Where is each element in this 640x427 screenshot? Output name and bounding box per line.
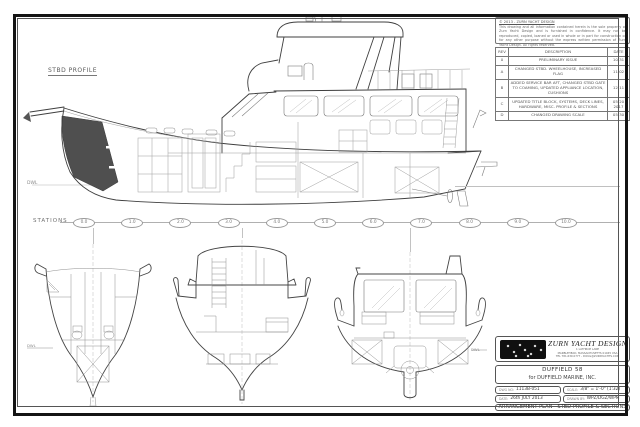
sheet-border-inner-line (17, 18, 619, 407)
drawing-sheet: STBD PROFILE DWL STATIONS 0.01.02.03.04.… (0, 0, 640, 427)
